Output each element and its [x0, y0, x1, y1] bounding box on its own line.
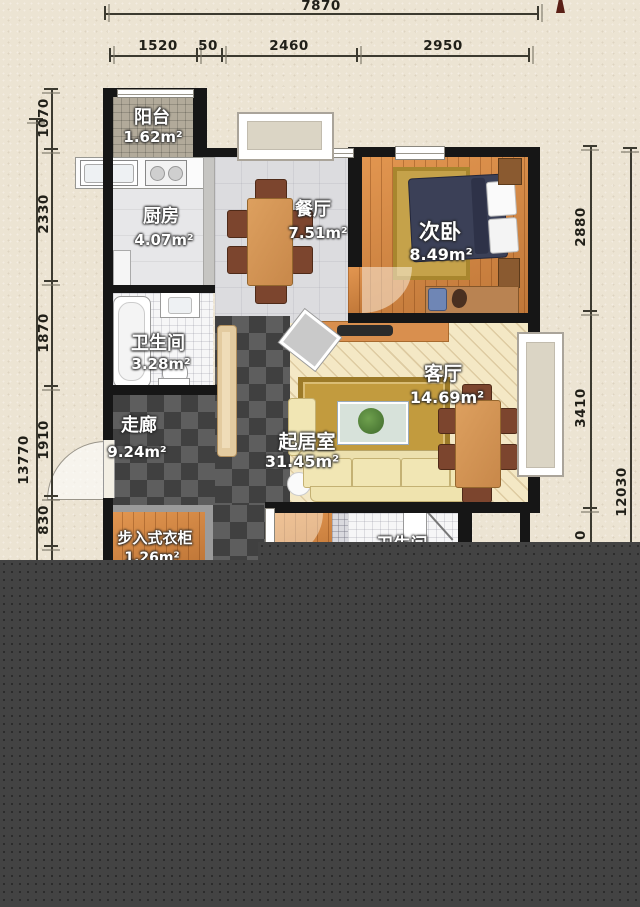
stove-burner [150, 166, 165, 181]
living-area-label: 起居室 [247, 427, 367, 454]
dim-tick [104, 6, 106, 20]
bedroom-cabinet [498, 258, 520, 288]
balcony-area: 1.62m² [93, 128, 213, 146]
dim-right-seg2: 3410 [573, 373, 589, 443]
sink-basin [168, 297, 192, 314]
bedroom-window [395, 146, 445, 160]
wall-right-upper [528, 147, 540, 338]
dim-tick [583, 310, 597, 312]
sink-basin [110, 164, 134, 183]
dim-top-seg1: 1520 [118, 38, 198, 54]
dim-left-seg1: 1070 [36, 83, 52, 153]
balcony-label: 阳台 [92, 103, 212, 129]
dim-tick [537, 6, 539, 20]
bathroom1-area: 3.28m² [101, 355, 221, 373]
bay-window-pane [247, 121, 322, 150]
bed-pillow [486, 180, 517, 217]
dim-left-seg2: 2330 [36, 179, 52, 249]
wall-bathroom1-bottom [103, 385, 217, 395]
bathroom-sink [160, 292, 200, 318]
bedroom-door-opening [348, 267, 362, 313]
dining-label: 餐厅 [253, 195, 373, 221]
dim-top-overall: 7870 [281, 0, 361, 14]
dim-tick [44, 280, 58, 282]
living-area-area: 31.45m² [242, 452, 362, 471]
living-label: 客厅 [383, 359, 503, 386]
floor-plan: 7870 1520 50 2460 2950 13770 1070 2330 1… [0, 0, 640, 907]
closet-label: 步入式衣柜 [95, 527, 215, 548]
dim-tick [623, 147, 637, 149]
kitchen-label: 厨房 [101, 202, 221, 228]
kitchen-stove [145, 160, 187, 186]
dim-top-seg4: 2950 [403, 38, 483, 54]
dim-tick [528, 48, 530, 62]
table-chair [499, 444, 518, 470]
living-window [517, 332, 564, 477]
dim-right-overall: 12030 [614, 457, 630, 527]
balcony-window [117, 89, 194, 98]
dim-line-top-segments [109, 55, 530, 57]
living-table [455, 400, 501, 488]
stove-burner [168, 166, 183, 181]
living-window-pane [526, 342, 555, 468]
bedroom2-area: 8.49m² [381, 245, 501, 264]
tv [337, 325, 393, 336]
dining-bay-window [237, 112, 334, 161]
wall-top-mid [193, 148, 243, 157]
dining-chair [255, 284, 287, 304]
dim-tick [583, 507, 597, 509]
dim-top-seg3: 2460 [249, 38, 329, 54]
dim-tick [44, 385, 58, 387]
corridor-area: 9.24m² [77, 443, 197, 461]
dim-right-seg1: 2880 [573, 192, 589, 262]
dim-left-seg3: 1870 [36, 298, 52, 368]
dim-left-seg4: 1910 [36, 405, 52, 475]
dim-tick [109, 48, 111, 62]
north-arrow-icon [556, 0, 565, 13]
bedroom2-label: 次卧 [380, 216, 500, 246]
dim-left-overall: 13770 [16, 425, 32, 495]
desk-chair [428, 288, 447, 311]
wall-bedroom-bottom [348, 313, 540, 323]
dim-line-right-segments [590, 145, 592, 560]
living-area-value: 14.69m² [387, 388, 507, 407]
wall-living-bottom [265, 502, 540, 513]
wall-corner-stub [520, 513, 530, 545]
wall-kitchen-bottom [103, 285, 215, 293]
dim-tick [356, 48, 358, 62]
dining-chair [227, 210, 249, 238]
corridor-label: 走廊 [79, 411, 199, 437]
dining-chair [227, 246, 249, 274]
door-leaf-panel [222, 332, 230, 448]
kitchen-area: 4.07m² [104, 231, 224, 249]
dining-chair [291, 246, 313, 274]
screenshot-cutoff-overlay-bottom [0, 560, 640, 907]
dim-tick [583, 145, 597, 147]
table-chair [499, 408, 518, 434]
dim-top-seg2: 50 [188, 38, 228, 54]
bedroom-wardrobe [498, 158, 522, 185]
bathroom1-label: 卫生间 [98, 329, 218, 355]
open-door-leaf [217, 325, 237, 457]
dining-area: 7.51m² [258, 224, 378, 242]
dim-left-seg5: 830 [36, 485, 52, 555]
